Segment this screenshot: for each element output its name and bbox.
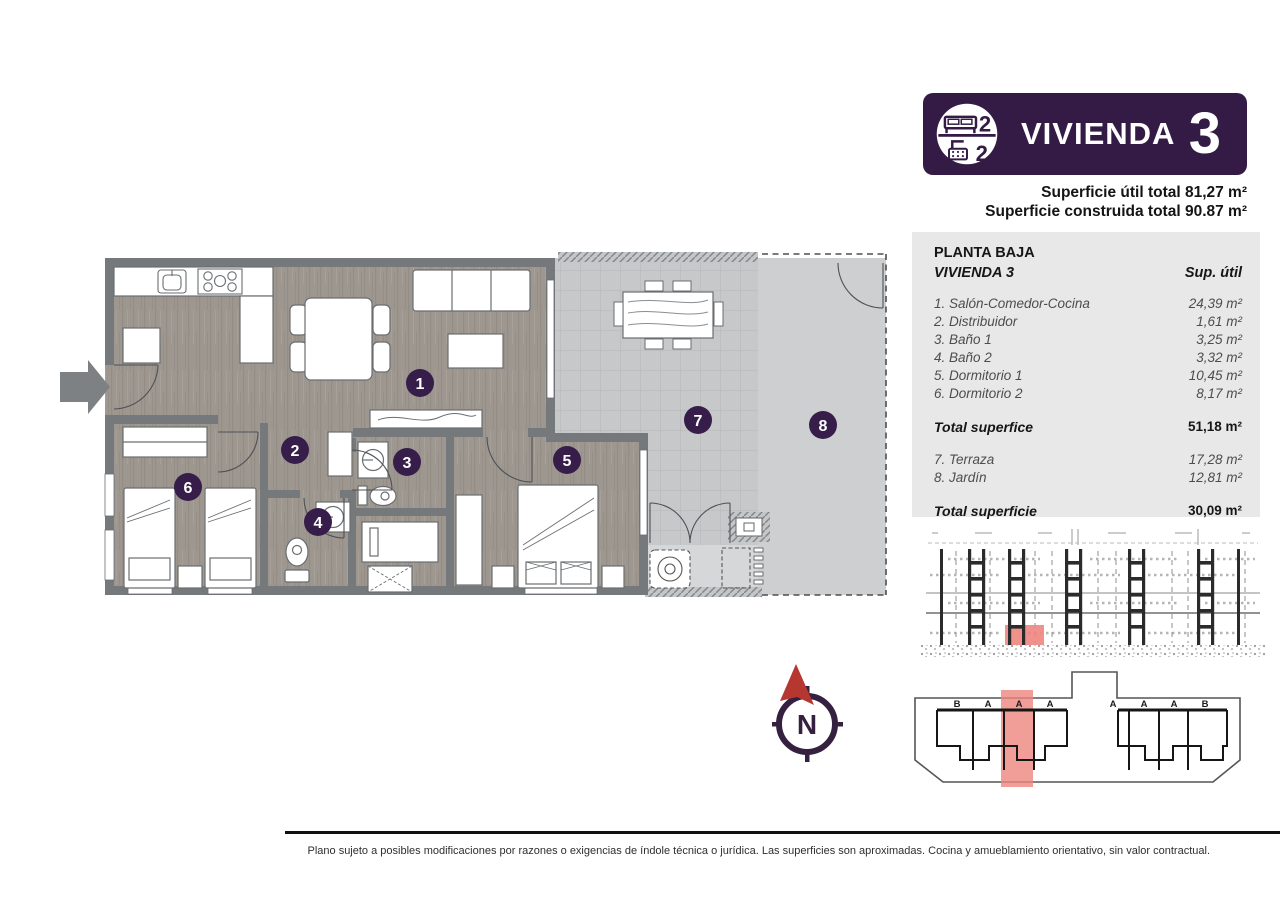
footer-disclaimer: Plano sujeto a posibles modificaciones p… bbox=[285, 845, 1210, 857]
room-badge-bath1: 3 bbox=[393, 448, 421, 476]
total-exterior-row: Total superficie 30,09 m² bbox=[934, 502, 1242, 520]
unit-number: 3 bbox=[1189, 105, 1221, 163]
room-badge-terrace: 7 bbox=[684, 406, 712, 434]
table-row: 4. Baño 23,32 m² bbox=[934, 349, 1242, 367]
svg-text:3: 3 bbox=[403, 455, 412, 472]
svg-text:2: 2 bbox=[291, 443, 300, 460]
table-row: 3. Baño 13,25 m² bbox=[934, 331, 1242, 349]
bathrooms-count: 2 bbox=[976, 141, 988, 166]
room-badge-bedroom2: 6 bbox=[174, 473, 202, 501]
svg-text:1: 1 bbox=[416, 376, 425, 393]
svg-text:B: B bbox=[1202, 699, 1209, 710]
svg-text:A: A bbox=[985, 699, 992, 710]
surface-util-total: Superficie útil total 81,27 m² bbox=[800, 183, 1247, 202]
unit-header-badge: 2 2 VIVIENDA 3 bbox=[923, 93, 1247, 175]
table-row: 5. Dormitorio 110,45 m² bbox=[934, 367, 1242, 385]
north-label: N bbox=[797, 709, 817, 740]
surface-summary: Superficie útil total 81,27 m² Superfici… bbox=[800, 183, 1247, 221]
svg-text:5: 5 bbox=[563, 453, 572, 470]
room-badge-bedroom1: 5 bbox=[553, 446, 581, 474]
ac-unit bbox=[736, 518, 762, 536]
svg-text:4: 4 bbox=[314, 515, 323, 532]
rooms-count-icon: 2 2 bbox=[931, 98, 1003, 170]
sofa bbox=[413, 270, 530, 311]
surface-built-total: Superficie construida total 90.87 m² bbox=[800, 202, 1247, 221]
unit-title: VIVIENDA bbox=[1021, 116, 1175, 152]
room-badge-living: 1 bbox=[406, 369, 434, 397]
ground-hatch bbox=[920, 645, 1265, 657]
svg-text:A: A bbox=[1016, 699, 1023, 710]
entry-arrow bbox=[60, 360, 110, 414]
table-row: 1. Salón-Comedor-Cocina24,39 m² bbox=[934, 295, 1242, 313]
room-badge-hall: 2 bbox=[281, 436, 309, 464]
table-row: 2. Distribuidor1,61 m² bbox=[934, 313, 1242, 331]
plan-sheet: 1 2 3 4 5 6 7 8 2 bbox=[0, 0, 1280, 905]
table-row: 6. Dormitorio 28,17 m² bbox=[934, 385, 1242, 403]
bedrooms-count: 2 bbox=[979, 112, 991, 137]
svg-text:8: 8 bbox=[819, 418, 828, 435]
floor-label: PLANTA BAJA bbox=[934, 243, 1242, 263]
svg-text:A: A bbox=[1171, 699, 1178, 710]
total-interior-row: Total superfice 51,18 m² bbox=[934, 418, 1242, 436]
area-table: PLANTA BAJA VIVIENDA 3 Sup. útil 1. Saló… bbox=[912, 232, 1260, 517]
room-badge-bath2: 4 bbox=[304, 508, 332, 536]
room-badge-garden: 8 bbox=[809, 411, 837, 439]
svg-text:6: 6 bbox=[184, 480, 193, 497]
footer-divider bbox=[285, 831, 1280, 834]
tv-cabinet bbox=[370, 410, 482, 428]
table-row: 8. Jardín12,81 m² bbox=[934, 469, 1242, 487]
table-column-header: Sup. útil bbox=[1185, 263, 1242, 283]
compass: N bbox=[754, 660, 858, 772]
table-unit-label: VIVIENDA 3 bbox=[934, 263, 1014, 283]
floor-plan: 1 2 3 4 5 6 7 8 bbox=[55, 250, 890, 605]
svg-text:A: A bbox=[1141, 699, 1148, 710]
coffee-table bbox=[448, 334, 503, 368]
svg-text:7: 7 bbox=[694, 413, 703, 430]
building-outline bbox=[915, 672, 1240, 782]
building-keyplan-diagram: B A A A A A A B bbox=[905, 660, 1270, 795]
svg-text:A: A bbox=[1047, 699, 1054, 710]
svg-text:A: A bbox=[1110, 699, 1117, 710]
building-elevation-diagram bbox=[920, 523, 1265, 660]
terrace-top-wall bbox=[558, 252, 758, 262]
table-row: 7. Terraza17,28 m² bbox=[934, 451, 1242, 469]
svg-text:B: B bbox=[954, 699, 961, 710]
washing-machine bbox=[650, 550, 690, 588]
